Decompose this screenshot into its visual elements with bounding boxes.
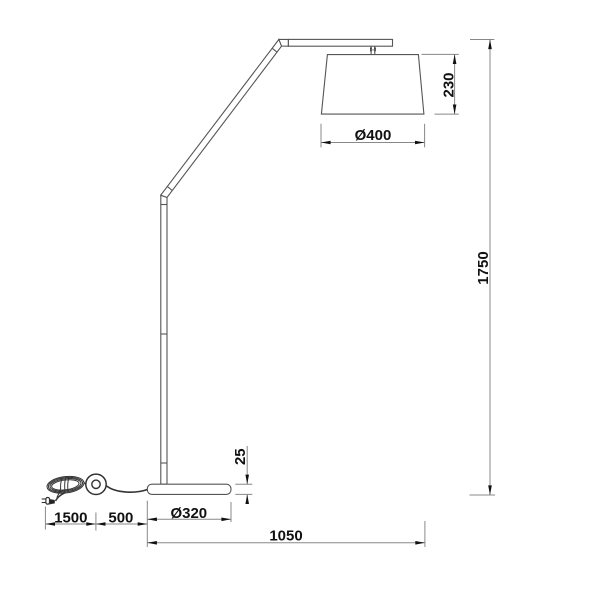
svg-text:Ø320: Ø320 — [170, 505, 207, 522]
svg-text:25: 25 — [232, 448, 249, 465]
svg-text:230: 230 — [441, 72, 458, 97]
svg-text:1050: 1050 — [269, 528, 302, 545]
svg-text:1500: 1500 — [54, 510, 87, 527]
svg-text:500: 500 — [108, 510, 133, 527]
svg-text:1750: 1750 — [475, 251, 492, 284]
svg-text:Ø400: Ø400 — [355, 127, 392, 144]
